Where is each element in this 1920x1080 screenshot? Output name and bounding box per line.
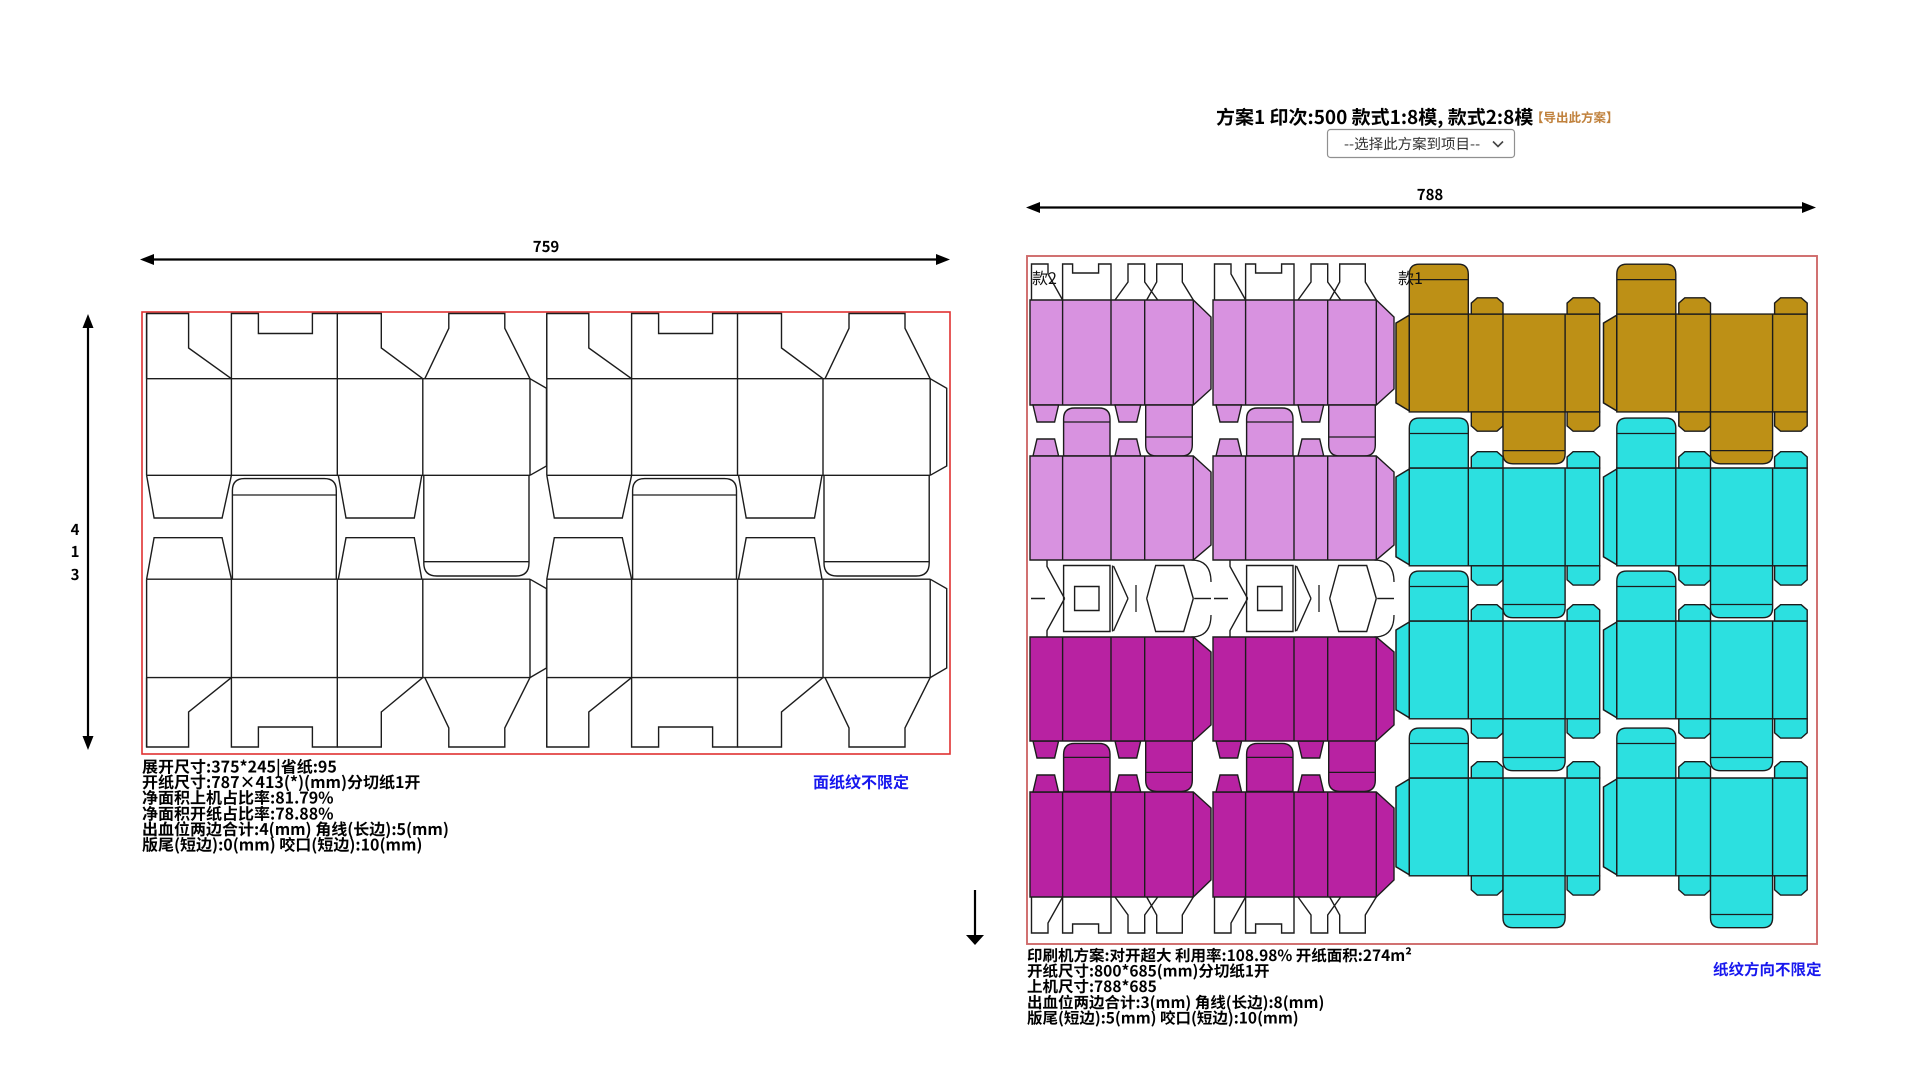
svg-text:纸纹方向不限定: 纸纹方向不限定 [1713,958,1822,980]
svg-text:788: 788 [1417,184,1444,205]
svg-text:759: 759 [533,236,560,257]
svg-text:4: 4 [71,519,80,540]
svg-text:版尾(短边):5(mm) 咬口(短边):10(mm): 版尾(短边):5(mm) 咬口(短边):10(mm) [1027,1006,1299,1028]
svg-text:款1: 款1 [1398,265,1423,289]
svg-text:3: 3 [71,564,80,585]
svg-text:版尾(短边):0(mm) 咬口(短边):10(mm): 版尾(短边):0(mm) 咬口(短边):10(mm) [142,832,422,856]
svg-text:面纸纹不限定: 面纸纹不限定 [813,769,909,793]
svg-text:1: 1 [71,541,80,562]
svg-text:方案1 印次:500 款式1:8模, 款式2:8模: 方案1 印次:500 款式1:8模, 款式2:8模 [1216,103,1533,130]
svg-text:【导出此方案】: 【导出此方案】 [1531,107,1619,126]
svg-text:款2: 款2 [1032,265,1057,289]
svg-text:--选择此方案到项目--: --选择此方案到项目-- [1344,133,1480,154]
